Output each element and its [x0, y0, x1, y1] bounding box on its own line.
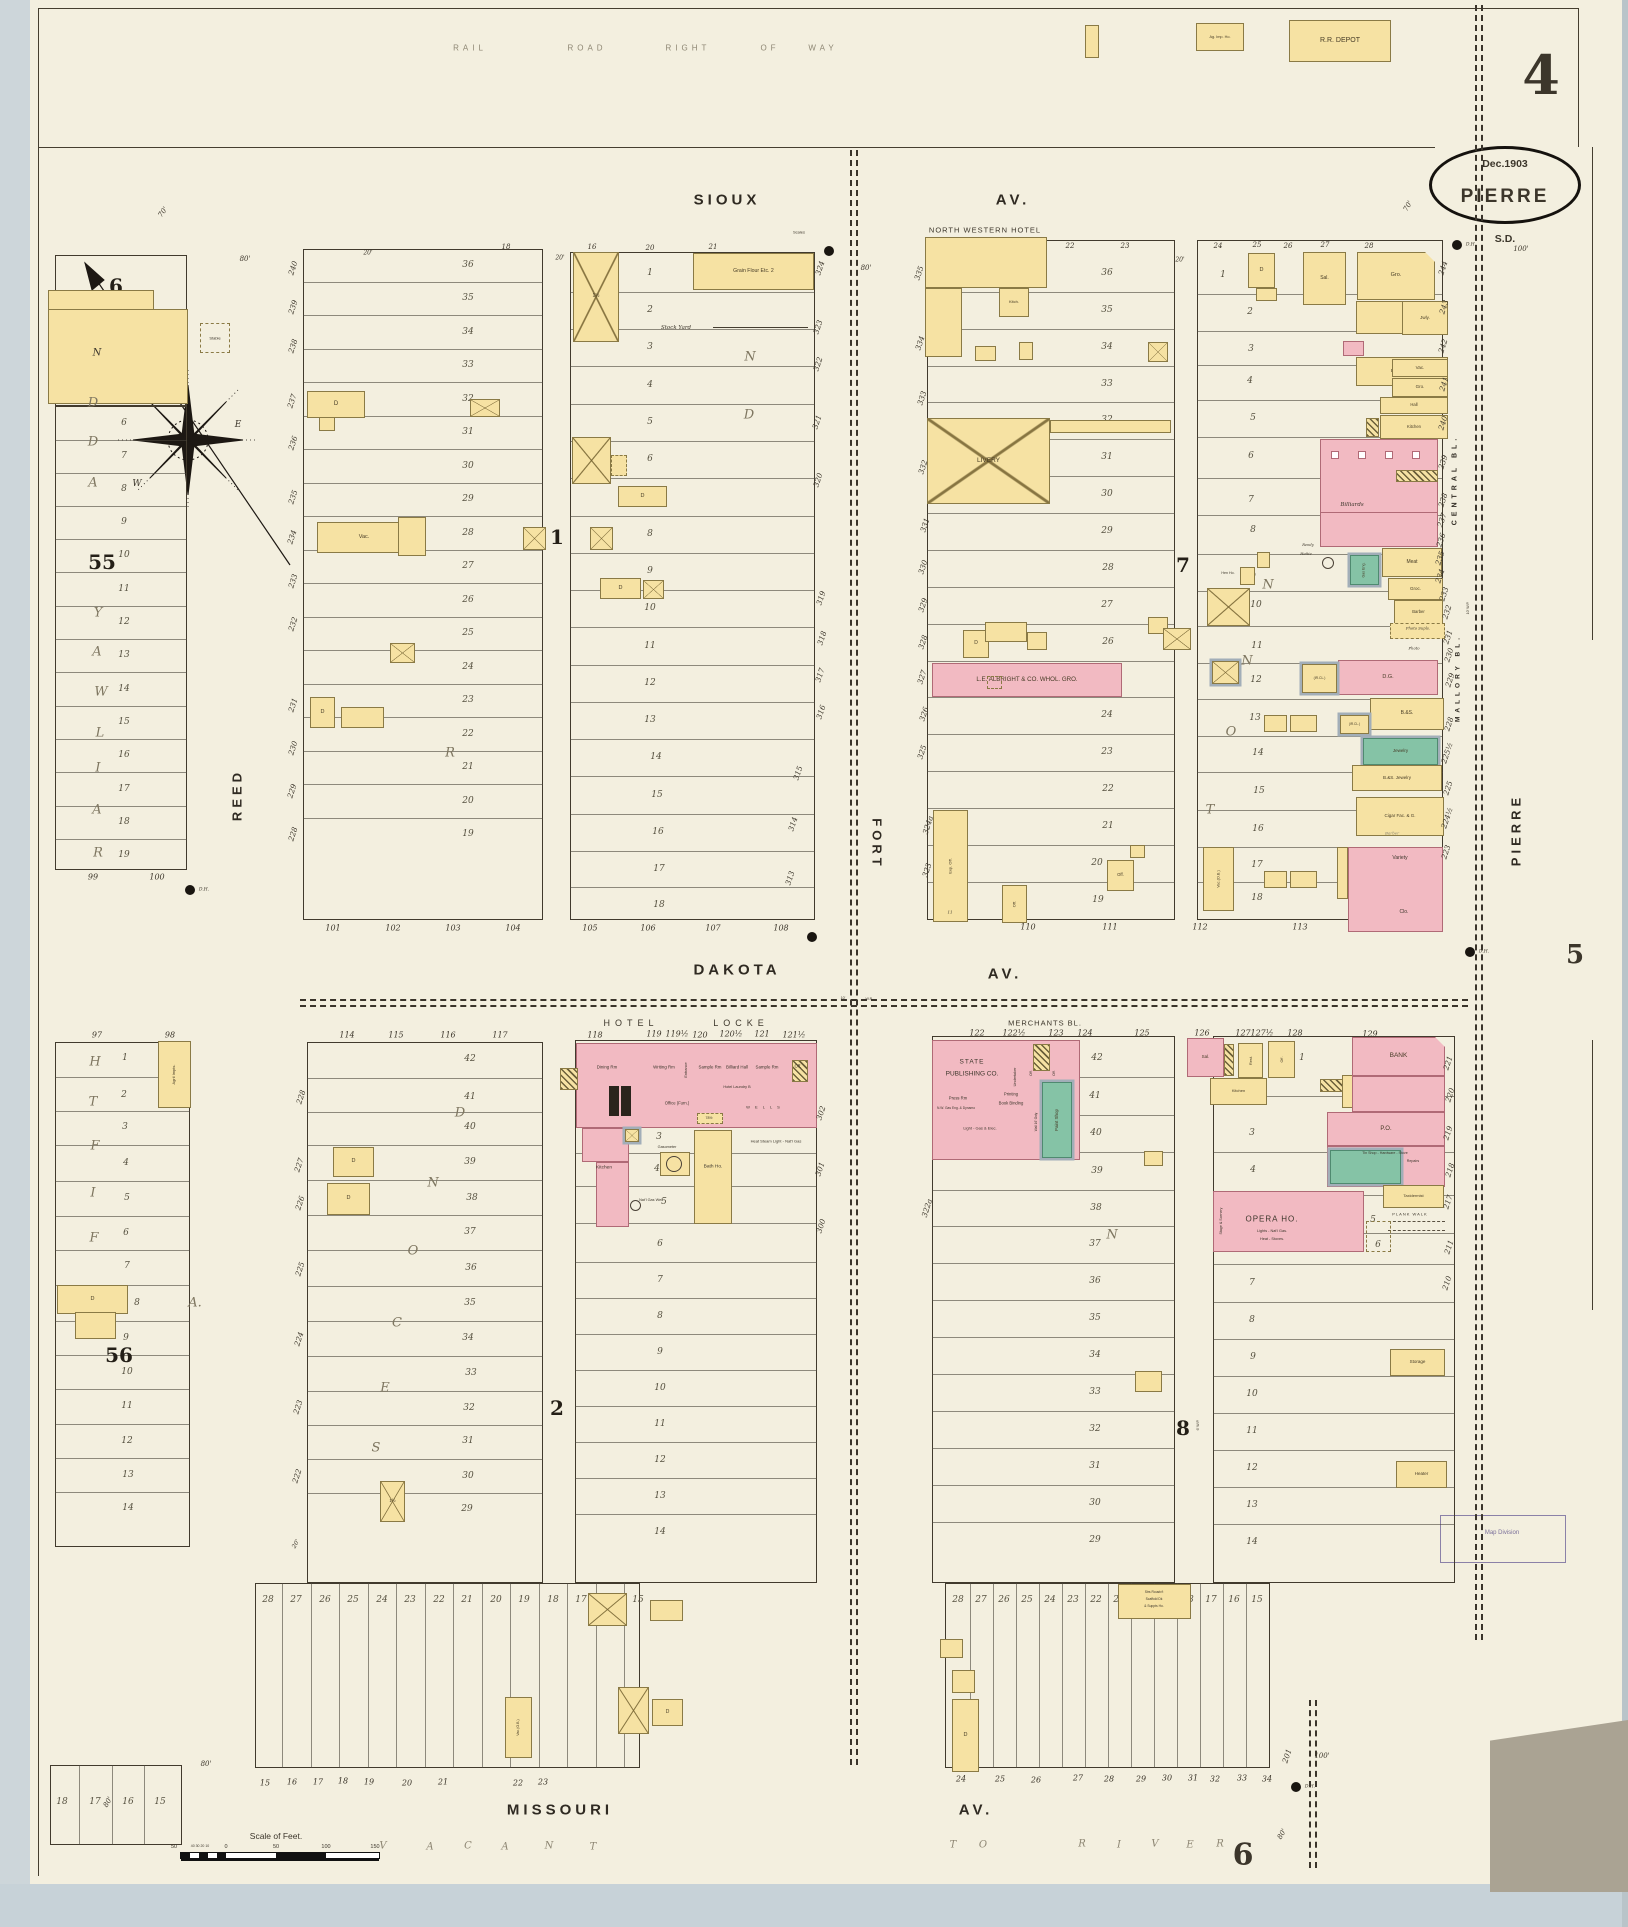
column-square-0	[1331, 451, 1339, 459]
block-7-east-lot-14: 14	[1252, 748, 1263, 758]
building-bldg-14	[341, 707, 384, 728]
block-1-west-lot-34: 34	[462, 327, 473, 337]
map-line-2	[1578, 8, 1579, 147]
address-number-50: 28	[1104, 1775, 1114, 1784]
address-number-39: 17	[313, 1778, 323, 1787]
building-bldg-46	[1356, 301, 1405, 334]
building-bldg-77	[1264, 715, 1287, 732]
block-7-east-lot-1: 1	[1220, 270, 1226, 280]
hydrant-dot-3	[807, 932, 817, 942]
block-2-river-strip-lotline-6	[425, 1583, 426, 1768]
block-2-east-lot-13: 13	[654, 1491, 665, 1501]
block-2-east-lot-12: 12	[654, 1455, 665, 1465]
text-30: Press Rm	[949, 1096, 967, 1101]
building-bldg-74	[1257, 552, 1270, 568]
block-55-lotline-8	[55, 672, 187, 673]
block-7-west-lotline-1	[927, 292, 1175, 293]
block-56-lot-11: 11	[121, 1401, 132, 1411]
address-number-14: 97	[92, 1031, 102, 1040]
text-89: W.P.	[865, 997, 872, 1001]
ghost-letter-16: N	[427, 1176, 438, 1191]
block-1-east-lot-6: 6	[647, 454, 653, 464]
column-square-2	[1385, 451, 1393, 459]
block-7-west-lot-29: 29	[1101, 526, 1112, 536]
block-8-east-lot-7: 7	[1249, 1278, 1255, 1288]
scale-tick-1: 0	[224, 1844, 227, 1850]
building-r-r-depot: R.R. DEPOT	[1289, 20, 1391, 62]
building-label-off: Off.	[997, 893, 1033, 916]
address-number-32: 126	[1194, 1029, 1209, 1038]
edge-number-54: 228	[1443, 716, 1456, 732]
edge-number-77: 201	[1281, 1748, 1294, 1764]
text-100: 27	[1321, 241, 1330, 249]
block-2-west-lot-35: 35	[464, 1298, 475, 1308]
text-26: Nat'l Gas Well	[639, 1198, 663, 1202]
text-49: OPERA HO.	[1245, 1215, 1298, 1224]
block-7-east-lot-6: 6	[1248, 451, 1254, 461]
address-number-26: 121½	[782, 1031, 805, 1040]
block-2-river-strip-lot-26: 26	[319, 1595, 330, 1605]
building-bldg-120	[1366, 1221, 1391, 1252]
block-1-east-lotline-12	[570, 702, 815, 703]
address-number-48: 26	[1031, 1776, 1041, 1785]
hydrant-dot-2	[185, 885, 195, 895]
block-8-east-lotline-12	[1213, 1524, 1455, 1525]
block-1-west-lot-29: 29	[462, 494, 473, 504]
block-7-west-lotline-9	[927, 587, 1175, 588]
text-36: Off.	[1029, 1070, 1033, 1076]
block-56-lotline-12	[55, 1458, 190, 1459]
address-number-17: 115	[388, 1031, 403, 1040]
building-label-p-o: P.O.	[1328, 1113, 1444, 1145]
ghost-letter-1: D	[88, 435, 98, 450]
building-paint-shop: Paint Shop	[1042, 1082, 1072, 1158]
block-1-west-lotline-1	[303, 282, 543, 283]
block-1-east-lot-8: 8	[647, 529, 653, 539]
block-8-east-lot-1: 1	[1299, 1053, 1305, 1063]
block-8-east-lotline-10	[1213, 1450, 1455, 1451]
building-label-d: D	[334, 1148, 373, 1176]
block-1-east-lot-1: 1	[647, 268, 653, 278]
edge-number-67: 223	[292, 1399, 305, 1415]
block-1-east-lot-15: 15	[651, 790, 662, 800]
block-1-east-lotline-14	[570, 776, 815, 777]
building-bldg-43	[1256, 288, 1277, 301]
address-number-34: 127½	[1250, 1029, 1273, 1038]
block-7-west-lot-20: 20	[1091, 858, 1102, 868]
block-8-east-lot-8: 8	[1249, 1315, 1255, 1325]
building-bldg-57	[1396, 470, 1438, 482]
building-bldg-98	[618, 1687, 649, 1734]
address-number-44: 22	[513, 1779, 523, 1788]
ghost-letter-24: N	[1262, 578, 1273, 593]
hydrant-dot-0	[824, 246, 834, 256]
block-56-lotline-3	[55, 1145, 190, 1146]
block-1-west-lotline-3	[303, 349, 543, 350]
block-1-west-lotline-7	[303, 483, 543, 484]
block-56-lot-6: 6	[123, 1228, 129, 1238]
text-38: Wall 16' Only	[1034, 1113, 1038, 1132]
text-15: Billiard Hall	[726, 1065, 748, 1070]
building-d: D	[652, 1699, 683, 1726]
address-number-23: 120	[692, 1031, 707, 1040]
building-exp-off: Exp. Off.	[933, 810, 968, 922]
building-bldg-39	[1163, 628, 1191, 650]
building-bldg-12	[390, 643, 415, 663]
block-1-west-lot-30: 30	[462, 461, 473, 471]
text-102: N	[93, 348, 102, 359]
text-70: I	[1117, 1840, 1121, 1851]
block-56-lotline-6	[55, 1250, 190, 1251]
block-7-west-lot-26: 26	[1102, 637, 1113, 647]
text-91: 18	[502, 243, 511, 251]
text-35: Undertaker	[1013, 1068, 1017, 1087]
block-55-lotline-13	[55, 839, 187, 840]
ghost-letter-15: D	[455, 1106, 465, 1121]
block-55-lotline-2	[55, 473, 187, 474]
text-58: & Suppts Ho.	[1144, 1604, 1163, 1608]
building-label-d: D	[58, 1286, 127, 1313]
block-55-lotline-7	[55, 639, 187, 640]
text-104: W	[132, 479, 141, 489]
text-10: LOCKE	[713, 1018, 769, 1028]
block-8-east-lotline-6	[1213, 1302, 1455, 1303]
block-2-river-strip-lot-21: 21	[461, 1595, 472, 1605]
building-d: D	[327, 1183, 370, 1215]
edge-number-25: 335	[913, 265, 926, 281]
building-storage: Storage	[1390, 1349, 1445, 1376]
building-bldg-117	[1330, 1150, 1401, 1184]
edge-number-62: 228	[295, 1089, 308, 1105]
block-1-east-lotline-13	[570, 739, 815, 740]
building-bldg-3	[48, 290, 154, 310]
building-bldg-36	[985, 622, 1027, 642]
text-71: V	[1151, 1839, 1158, 1850]
address-number-55: 33	[1237, 1774, 1247, 1783]
block-7-east-lot-15: 15	[1253, 786, 1264, 796]
building-bldg-4	[48, 309, 188, 404]
block-55-lotline-10	[55, 739, 187, 740]
block-55-lotline-12	[55, 806, 187, 807]
text-90: 6' W.P.	[1196, 1420, 1200, 1431]
text-8: Stable	[209, 336, 220, 341]
building-label-d: D	[601, 579, 640, 598]
hydrant-dot-4	[1465, 947, 1475, 957]
text-55: Repairs	[1407, 1159, 1419, 1163]
address-number-40: 18	[338, 1777, 348, 1786]
block-56-lot-5: 5	[124, 1193, 130, 1203]
text-86: 80'	[1276, 1827, 1288, 1840]
address-number-15: 98	[165, 1031, 175, 1040]
ghost-letter-29: A.	[188, 1296, 202, 1311]
text-92: 16	[588, 243, 597, 251]
building-bldg-0	[1085, 25, 1099, 58]
block-2-river-strip-lot-17: 17	[575, 1595, 586, 1605]
block-2-east-lot-11: 11	[654, 1419, 665, 1429]
block-2-river-strip-lotline-11	[567, 1583, 568, 1768]
block-2-west-lot-38: 38	[466, 1193, 477, 1203]
text-17: Off.	[795, 1064, 802, 1069]
block-8-east-lot-3: 3	[1249, 1128, 1255, 1138]
building-vac-o-b: Vac.(O.B.)	[505, 1697, 532, 1758]
edge-number-20: 317	[814, 667, 827, 683]
address-number-20: 118	[587, 1031, 602, 1040]
text-40: Variety	[1392, 855, 1407, 861]
edge-number-8: 232	[287, 616, 300, 632]
block-56-lot-10: 10	[121, 1367, 132, 1377]
building-jewelry: Jewelry	[1363, 738, 1438, 765]
block-56-lotline-2	[55, 1111, 190, 1112]
block-8-east-lot-10: 10	[1246, 1389, 1257, 1399]
building-label-d: D	[308, 392, 364, 417]
text-85: 100'	[1314, 1752, 1329, 1760]
scale-tick-3: 100	[321, 1844, 330, 1850]
scale-bar	[180, 1852, 380, 1859]
block-56-lotline-11	[55, 1424, 190, 1425]
address-number-53: 31	[1188, 1774, 1198, 1783]
block-2-river-strip-lot-20: 20	[490, 1595, 501, 1605]
block-1-west-lot-35: 35	[462, 293, 473, 303]
block-2-east-lotline-9	[575, 1442, 817, 1443]
block-1-east-lotline-4	[570, 404, 815, 405]
address-number-1: 100	[149, 873, 164, 882]
address-number-24: 120½	[719, 1030, 742, 1039]
block-56-south-lotline-1	[79, 1765, 80, 1845]
block-56-lotline-5	[55, 1216, 190, 1217]
street-dashed-line-1	[1475, 5, 1483, 1640]
block-1-east-lotline-3	[570, 366, 815, 367]
building-gas-eng: Gas Eng.	[1350, 555, 1379, 585]
block-1-west-lotline-10	[303, 583, 543, 584]
block-2-river-strip-lotline-2	[311, 1583, 312, 1768]
building-label-vac: Vac.	[1393, 360, 1447, 376]
building-label-paint-shop: Paint Shop	[1020, 1106, 1094, 1134]
block-7-east-lot-5: 5	[1250, 413, 1256, 423]
building-label-taxidermist: Taxidermist	[1384, 1186, 1443, 1207]
ghost-letter-10: H	[89, 1055, 100, 1070]
text-93: 20	[646, 244, 655, 252]
ghost-letter-18: C	[392, 1316, 402, 1331]
text-47: Photo	[1408, 646, 1419, 651]
building-label-cigar-fac-g: Cigar Fac. & G.	[1357, 798, 1443, 835]
block-8-west-lotline-12	[932, 1485, 1175, 1486]
building-cigar-fac-g: Cigar Fac. & G.	[1356, 797, 1444, 836]
text-74: 70'	[157, 205, 170, 218]
building-bldg-11	[523, 527, 546, 550]
text-48: Barber	[1385, 831, 1399, 836]
block-8-west-lotline-8	[932, 1337, 1175, 1338]
block-1-west-lot-25: 25	[462, 628, 473, 638]
scale-tick-2: 50	[273, 1844, 279, 1850]
block-1-west-lot-31: 31	[462, 427, 473, 437]
block-1-east-number: 1	[550, 525, 564, 549]
block-8-west-lot-35: 35	[1089, 1313, 1100, 1323]
building-1: 1½	[573, 252, 619, 342]
building-1: 1½	[380, 1481, 405, 1522]
text-1: ROAD	[567, 44, 606, 53]
block-2-west-lot-37: 37	[464, 1227, 475, 1237]
building-bldg-18	[611, 455, 627, 476]
block-56-south-lotline-3	[144, 1765, 145, 1845]
ghost-letter-9: R	[93, 846, 103, 861]
ghost-letter-3: Y	[94, 606, 103, 621]
block-7-east-lot-3: 3	[1248, 344, 1254, 354]
text-45: 11	[947, 910, 952, 915]
block-2-west-number: 2	[550, 1396, 564, 1420]
block-7-west-lotline-12	[927, 697, 1175, 698]
adjacent-sheet-shadow	[1490, 1720, 1628, 1892]
building-label-ir-cl: (IR.CL.)	[1303, 665, 1336, 692]
address-number-22: 119½	[665, 1030, 688, 1039]
block-7-west-lot-33: 33	[1101, 379, 1112, 389]
oval-city: PIERRE	[1432, 186, 1578, 208]
scan-edge-bottom	[0, 1884, 1628, 1927]
text-103: E	[235, 420, 242, 430]
block-2-west-lotline-1	[307, 1078, 543, 1079]
title-oval: Dec.1903 PIERRE S.D.	[1429, 146, 1581, 224]
building-label-off: Off.	[1108, 861, 1133, 890]
building-sal: Sal.	[1187, 1038, 1224, 1077]
building-bldg-10	[398, 517, 426, 556]
block-8-west-lot-31: 31	[1089, 1461, 1100, 1471]
text-44: Hen Ho.	[1221, 571, 1234, 575]
building-agril-impts: Agril Impts.	[158, 1041, 191, 1108]
block-8-east-lotline-7	[1213, 1339, 1455, 1340]
hydrant-label-4: D.H.	[1479, 950, 1489, 955]
building-bldg-95	[588, 1593, 627, 1626]
building-label-vac-o-b: Vac.(O.B.)	[489, 1715, 548, 1740]
building-label-groc: Groc.	[1389, 579, 1442, 599]
text-62: A	[426, 1842, 433, 1853]
block-55-lotline-11	[55, 772, 187, 773]
building-label-hall: Hall	[1381, 398, 1447, 413]
building-vac: Vac.	[317, 522, 411, 553]
block-1-west-lot-21: 21	[462, 762, 473, 772]
street-name-pierre: PIERRE	[1509, 794, 1524, 866]
building-label-heater: Heater	[1397, 1462, 1446, 1487]
address-number-35: 128	[1287, 1029, 1302, 1038]
building-label-gro: Gro.	[1358, 253, 1434, 299]
text-57: Scaffold Dk	[1146, 1597, 1163, 1601]
text-80: 70'	[1402, 199, 1414, 212]
address-number-4: 103	[445, 924, 460, 933]
street-name-sioux: SIOUX	[694, 192, 761, 209]
street-name-mallory-bl-: MALLORY BL.	[1455, 634, 1462, 722]
building-bldg-128	[75, 1312, 116, 1339]
text-98: 25	[1253, 241, 1262, 249]
block-1-west-lot-26: 26	[462, 595, 473, 605]
block-56-lot-1: 1	[122, 1053, 128, 1063]
block-56-south-lot-16: 16	[122, 1797, 133, 1807]
block-2-river-strip-lot-28: 28	[262, 1595, 273, 1605]
text-84: 20'	[291, 1538, 302, 1550]
building-bldg-27	[1019, 342, 1033, 360]
building-label-vac-o-b: Vac.(O.B.)	[1188, 865, 1250, 894]
building-label-sal: Sal.	[1188, 1039, 1223, 1076]
block-2-east-lot-6: 6	[657, 1239, 663, 1249]
text-25: Heat Steam Light - Nat'l Gas	[751, 1139, 802, 1144]
block-56-lot-12: 12	[121, 1436, 132, 1446]
block-55-lotline-1	[55, 440, 187, 441]
block-1-east-lotline-10	[570, 627, 815, 628]
block-55-lot-10: 10	[118, 550, 129, 560]
block-1-west-lot-33: 33	[462, 360, 473, 370]
block-56-south-lotline-2	[112, 1765, 113, 1845]
building-bldg-107	[940, 1639, 963, 1658]
block-1-east-lotline-7	[570, 516, 815, 517]
street-name-av-: AV.	[959, 1802, 994, 1819]
block-7-west-lot-28: 28	[1102, 563, 1113, 573]
block-55-lotline-5	[55, 572, 187, 573]
building-bldg-87	[625, 1129, 639, 1142]
block-56-lotline-4	[55, 1181, 190, 1182]
address-number-51: 29	[1136, 1775, 1146, 1784]
address-number-5: 104	[505, 924, 520, 933]
ghost-letter-11: T	[89, 1095, 98, 1110]
block-7-east-lot-18: 18	[1251, 893, 1262, 903]
block-2-west-lot-30: 30	[462, 1471, 473, 1481]
block-56-lot-3: 3	[122, 1122, 128, 1132]
building-label-b-s: B.&S.	[1371, 699, 1443, 729]
block-56-lot-13: 13	[122, 1470, 133, 1480]
building-bldg-30	[1050, 420, 1171, 433]
edge-number-21: 316	[815, 704, 828, 720]
building-bldg-85	[582, 1128, 629, 1162]
address-number-7: 106	[640, 924, 655, 933]
address-number-29: 123	[1048, 1029, 1063, 1038]
text-53: PLANK WALK	[1392, 1212, 1427, 1217]
block-8-east-lot-9: 9	[1250, 1352, 1256, 1362]
building-vac-o-b: Vac.(O.B.)	[1203, 847, 1234, 911]
block-1-east-lot-16: 16	[652, 827, 663, 837]
building-label-sal: Sal.	[1304, 253, 1345, 304]
text-12: Dining Rm	[597, 1065, 618, 1070]
block-56-south-lot-17: 17	[89, 1797, 100, 1807]
text-6: Stock Yard	[661, 325, 691, 331]
block-2-river-strip-lot-15: 15	[632, 1595, 643, 1605]
block-1-east-lot-13: 13	[644, 715, 655, 725]
text-96: 23	[1121, 242, 1130, 250]
text-73: R	[1216, 1839, 1224, 1850]
block-7-west-lot-35: 35	[1101, 305, 1112, 315]
block-7-west-lot-22: 22	[1102, 784, 1113, 794]
address-number-42: 20	[402, 1779, 412, 1788]
text-34: Light - Gas & Elec.	[963, 1126, 996, 1131]
text-68: O	[979, 1840, 987, 1851]
block-2-west-lot-42: 42	[464, 1054, 475, 1064]
building-ir-cl: (IR.CL.)	[1302, 664, 1337, 693]
text-27: 78½	[706, 1116, 713, 1120]
block-2-west-lot-40: 40	[464, 1122, 475, 1132]
block-56-number: 56	[105, 1343, 133, 1367]
ghost-letter-20: S	[372, 1441, 381, 1456]
building-label-b-s-jewelry: B.&S. Jewelry	[1353, 766, 1441, 790]
text-20: Office (Furn.)	[665, 1101, 690, 1106]
building-l-e-albright-co-whol-gro: L.E. ALBRIGHT & CO. WHOL. GRO.	[932, 663, 1122, 697]
block-1-west-lotline-13	[303, 684, 543, 685]
block-55-lot-15: 15	[118, 717, 129, 727]
street-name-fort: FORT	[870, 818, 885, 869]
block-7-east-lot-17: 17	[1251, 860, 1262, 870]
block-1-east-lot-5: 5	[647, 417, 653, 427]
text-69: R	[1078, 1839, 1086, 1850]
text-60: 40 30 20 10	[191, 1844, 210, 1848]
block-8-east-lot-4: 4	[1250, 1165, 1256, 1175]
building-label-agril-impts: Agril Impts.	[142, 1059, 207, 1090]
sanborn-map-sheet: Dec.1903 PIERRE S.D. 667891011121314151	[0, 0, 1628, 1927]
block-1-west-lot-28: 28	[462, 528, 473, 538]
block-7-west-lotline-8	[927, 550, 1175, 551]
